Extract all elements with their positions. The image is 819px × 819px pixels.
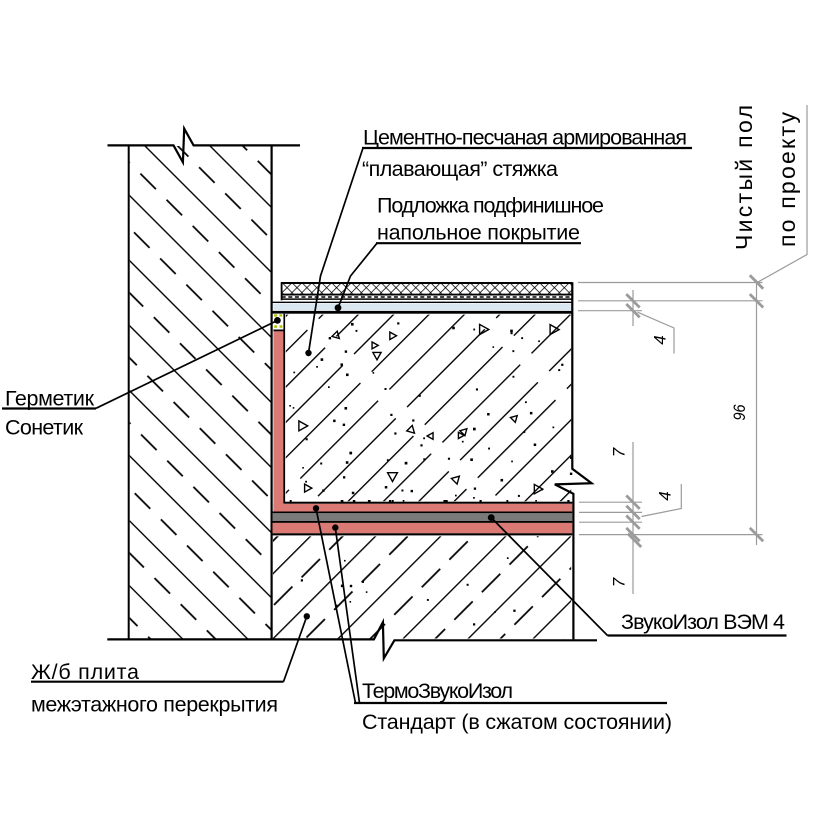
svg-text:7: 7 [610,577,629,587]
svg-text:по проекту: по проекту [774,112,800,248]
svg-text:Герметик: Герметик [5,387,95,411]
svg-text:Стандарт (в сжатом состоянии): Стандарт (в сжатом состоянии) [362,710,672,734]
svg-text:4: 4 [651,335,670,344]
svg-text:ТермоЗвукоИзол: ТермоЗвукоИзол [362,679,513,703]
svg-text:4: 4 [656,491,675,500]
svg-text:Сонетик: Сонетик [5,416,84,440]
svg-text:7: 7 [610,447,629,457]
svg-text:Цементно-песчаная армированная: Цементно-песчаная армированная [363,126,687,150]
svg-text:напольное покрытие: напольное покрытие [377,221,580,245]
svg-text:межэтажного перекрытия: межэтажного перекрытия [31,693,278,717]
svg-text:ЗвукоИзол ВЭМ 4: ЗвукоИзол ВЭМ 4 [621,610,785,634]
svg-text:96: 96 [730,404,749,420]
svg-text:Ж/б плита: Ж/б плита [31,660,139,684]
svg-text:Подложка подфинишное: Подложка подфинишное [377,194,604,218]
svg-text:“плавающая” стяжка: “плавающая” стяжка [362,157,558,181]
svg-text:Чистый пол: Чистый пол [731,105,757,250]
